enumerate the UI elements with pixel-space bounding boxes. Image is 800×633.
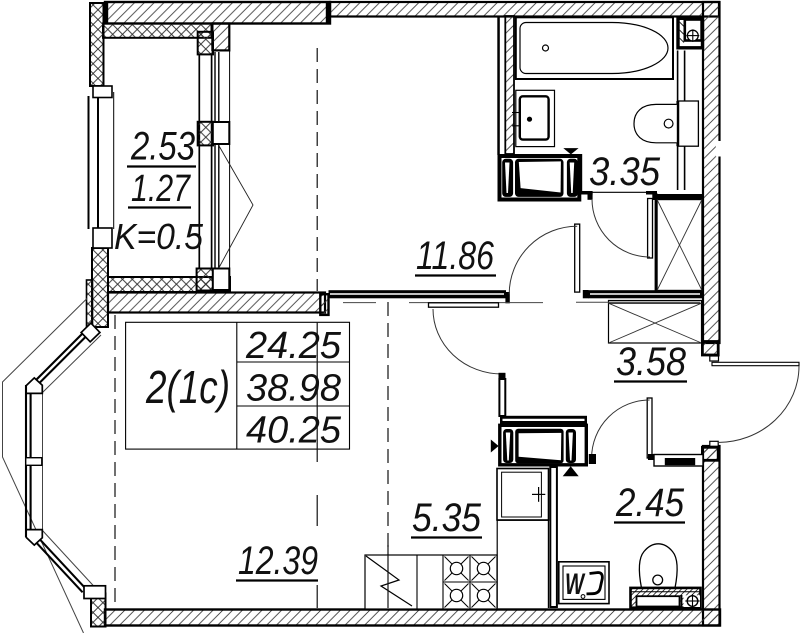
- svg-text:38.98: 38.98: [246, 368, 341, 410]
- svg-text:K=0.5: K=0.5: [114, 216, 204, 257]
- svg-text:1.27: 1.27: [131, 168, 191, 210]
- svg-text:2.53: 2.53: [130, 125, 195, 169]
- svg-text:W: W: [565, 568, 586, 601]
- svg-text:2(1c): 2(1c): [145, 361, 230, 413]
- svg-text:5.35: 5.35: [412, 496, 482, 540]
- svg-text:2.45: 2.45: [615, 481, 685, 525]
- svg-text:11.86: 11.86: [416, 234, 495, 278]
- svg-text:12.39: 12.39: [238, 539, 318, 583]
- svg-text:3.35: 3.35: [589, 150, 661, 194]
- svg-text:24.25: 24.25: [245, 325, 342, 367]
- svg-text:40.25: 40.25: [246, 410, 342, 452]
- svg-text:3.58: 3.58: [616, 340, 687, 384]
